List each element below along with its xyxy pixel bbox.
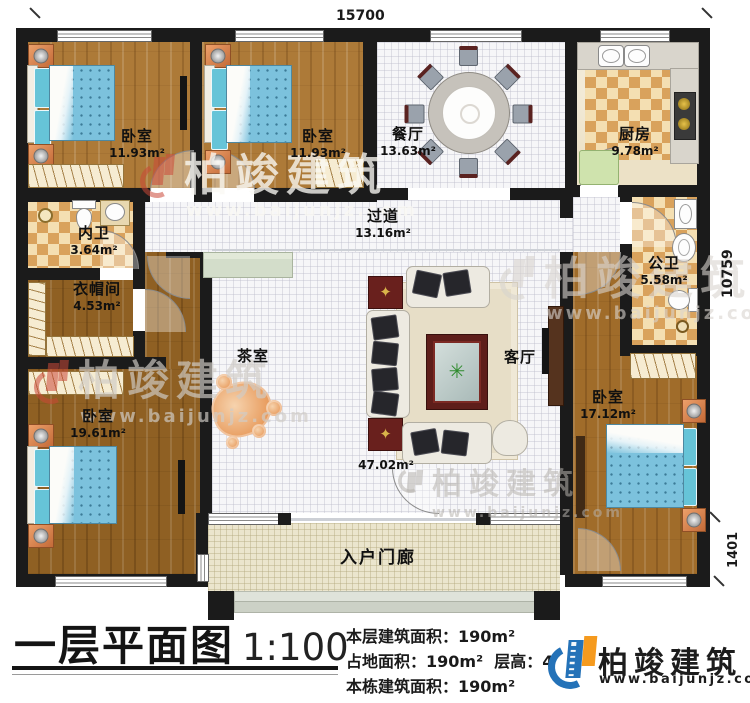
room-name: 卧室 bbox=[70, 408, 126, 426]
bed-sheet bbox=[50, 66, 73, 140]
porch-column-right bbox=[534, 591, 560, 620]
room-name: 卧室 bbox=[290, 128, 346, 146]
room-name: 厨房 bbox=[611, 126, 658, 144]
dimension-tick bbox=[713, 575, 724, 586]
washing-machine bbox=[674, 199, 697, 229]
room-area: 47.02m² bbox=[358, 458, 414, 472]
dining-chair bbox=[513, 105, 533, 124]
vestibule-floor bbox=[573, 197, 620, 252]
brand-logo-icon bbox=[140, 154, 176, 198]
title-text: 一层平面图 bbox=[14, 621, 234, 670]
door-gap-kitchen bbox=[580, 185, 618, 197]
room-name: 入户门廊 bbox=[340, 548, 416, 568]
sofa-cushion bbox=[371, 341, 399, 367]
bed-mattress bbox=[49, 65, 115, 141]
kitchen-sink bbox=[598, 45, 624, 67]
title-scale: 1:100 bbox=[242, 626, 349, 669]
room-name: 卧室 bbox=[580, 389, 636, 407]
stat-label: 本层建筑面积： bbox=[346, 627, 458, 646]
stat-label: 占地面积： bbox=[346, 652, 426, 671]
bed-sheet bbox=[50, 447, 74, 523]
plant-icon: ✳ bbox=[449, 361, 466, 381]
stat-line-2: 占地面积：190m² 层高：4 bbox=[346, 649, 553, 674]
lamp-icon bbox=[34, 529, 49, 544]
end-table: ✦ bbox=[368, 276, 403, 309]
lamp-icon bbox=[687, 513, 702, 528]
room-area: 19.61m² bbox=[70, 426, 126, 440]
watermark-site: www.baijunjz.com bbox=[546, 305, 750, 323]
sofa-cushion bbox=[371, 314, 400, 340]
room-label-living: 客厅 bbox=[504, 349, 536, 367]
window-bedroom-bl bbox=[55, 576, 167, 587]
brand-logo-icon bbox=[500, 256, 536, 300]
room-area: 9.78m² bbox=[611, 144, 658, 158]
room-name: 客厅 bbox=[504, 349, 536, 367]
sofa-cushion bbox=[442, 269, 471, 297]
room-name: 餐厅 bbox=[380, 126, 436, 144]
stat-line-3: 本栋建筑面积：190m² bbox=[346, 674, 553, 699]
title-underline-thin bbox=[12, 674, 338, 675]
dimension-right-lower: 1401 bbox=[726, 532, 741, 568]
dining-chair bbox=[459, 46, 478, 66]
wardrobe bbox=[46, 336, 134, 357]
room-label-inner-bath: 内卫 3.64m² bbox=[70, 225, 117, 257]
stat-value: 190m² bbox=[458, 677, 515, 696]
dining-table-center bbox=[460, 104, 480, 124]
lamp-icon bbox=[34, 149, 49, 164]
sofa-cushion bbox=[371, 390, 400, 416]
stove-burner-icon bbox=[678, 118, 690, 130]
room-label-cloakroom: 衣帽间 4.53m² bbox=[73, 281, 121, 313]
watermark: 柏竣建筑 www.baijunjz.com bbox=[500, 256, 750, 323]
bed-sheet bbox=[607, 425, 683, 453]
wardrobe bbox=[630, 353, 696, 379]
watermark-brand: 柏竣建筑 bbox=[78, 360, 274, 402]
room-label-public-bath: 公卫 5.58m² bbox=[640, 255, 687, 287]
porch-window-left bbox=[208, 513, 280, 525]
washbasin bbox=[105, 203, 125, 221]
brand-logo-icon bbox=[550, 636, 596, 690]
bed-sheet bbox=[227, 66, 250, 142]
stat-label: 本栋建筑面积： bbox=[346, 677, 458, 696]
room-area: 17.12m² bbox=[580, 407, 636, 421]
porch-pillar-b bbox=[278, 513, 291, 525]
lamp-icon bbox=[211, 49, 226, 64]
wardrobe bbox=[28, 164, 124, 188]
room-label-bedroom-tl: 卧室 11.93m² bbox=[109, 128, 165, 160]
stat-line-1: 本层建筑面积：190m² bbox=[346, 624, 553, 649]
door-gap-cloakroom bbox=[133, 289, 145, 331]
tv bbox=[180, 76, 187, 130]
stat-value: 190m² bbox=[458, 627, 515, 646]
wall-dining-south-b bbox=[510, 188, 565, 200]
window-bedroom-tl bbox=[57, 30, 152, 42]
room-area: 4.53m² bbox=[73, 299, 121, 313]
sofa-cushion bbox=[410, 428, 440, 456]
window-kitchen bbox=[600, 30, 670, 42]
washer-drum-icon bbox=[679, 204, 692, 224]
stove-burner-icon bbox=[678, 98, 690, 110]
coffee-table: ✳ bbox=[426, 334, 488, 410]
brand-logo-icon bbox=[34, 360, 70, 404]
dimension-tick bbox=[29, 7, 40, 18]
sink-bowl bbox=[602, 49, 620, 63]
dimension-tick bbox=[701, 7, 712, 18]
room-label-bedroom-tm: 卧室 11.93m² bbox=[290, 128, 346, 160]
floor-transition-line bbox=[212, 249, 560, 251]
nightstand bbox=[682, 508, 706, 532]
watermark-brand: 柏竣建筑 bbox=[184, 154, 388, 198]
nightstand bbox=[28, 524, 54, 548]
brand-site: www.baijunjz.com bbox=[599, 672, 750, 687]
title-underline bbox=[12, 666, 338, 670]
room-area: 13.63m² bbox=[380, 144, 436, 158]
dimension-right-upper: 10759 bbox=[720, 249, 736, 298]
door-gap-inner-bath bbox=[100, 268, 133, 280]
nightstand bbox=[682, 399, 706, 423]
decor-star-icon: ✦ bbox=[379, 285, 392, 300]
door-gap-public-bath bbox=[620, 202, 632, 244]
sink-bowl bbox=[628, 49, 646, 63]
dimension-top: 15700 bbox=[336, 8, 385, 24]
window-bedroom-tm bbox=[235, 30, 324, 42]
room-name: 公卫 bbox=[640, 255, 687, 273]
porch-window-side bbox=[197, 554, 209, 582]
room-label-porch: 入户门廊 bbox=[340, 548, 416, 568]
room-label-bedroom-br: 卧室 17.12m² bbox=[580, 389, 636, 421]
tea-stone-decor bbox=[226, 436, 239, 449]
room-name: 过道 bbox=[355, 208, 411, 226]
watermark-site: www.baijunjz.com bbox=[432, 506, 623, 520]
dimension-tick bbox=[709, 511, 720, 522]
sofa-cushion bbox=[441, 430, 470, 457]
room-area: 13.16m² bbox=[355, 226, 411, 240]
porch-wall-right bbox=[560, 525, 573, 575]
room-area: 11.93m² bbox=[290, 146, 346, 160]
room-name: 卧室 bbox=[109, 128, 165, 146]
room-name: 茶室 bbox=[237, 348, 269, 366]
wardrobe bbox=[28, 282, 46, 356]
tv bbox=[542, 328, 549, 374]
watermark: 柏竣建筑 www.baijunjz.com bbox=[398, 470, 623, 520]
room-area: 3.64m² bbox=[70, 243, 117, 257]
lamp-icon bbox=[34, 429, 49, 444]
bed-pillow bbox=[682, 428, 697, 466]
room-area: 11.93m² bbox=[109, 146, 165, 160]
brand-logo-icon bbox=[398, 470, 417, 493]
dining-chair bbox=[459, 158, 478, 178]
stat-label: 层高： bbox=[494, 652, 542, 671]
lamp-icon bbox=[34, 49, 49, 64]
wall-kitchen-left bbox=[565, 28, 577, 185]
nightstand bbox=[28, 424, 54, 448]
armchair bbox=[492, 420, 528, 456]
sofa-cushion bbox=[371, 367, 399, 392]
wall-hall-right-upper bbox=[560, 188, 573, 218]
room-name: 内卫 bbox=[70, 225, 117, 243]
lamp-icon bbox=[687, 404, 702, 419]
pendant-lamp-icon bbox=[38, 208, 53, 223]
room-label-corridor: 过道 13.16m² bbox=[355, 208, 411, 240]
stat-value: 190m² bbox=[426, 652, 483, 671]
tea-mat bbox=[203, 252, 293, 278]
room-label-kitchen: 厨房 9.78m² bbox=[611, 126, 658, 158]
bed-mattress bbox=[49, 446, 117, 524]
window-dining bbox=[430, 30, 522, 42]
room-area: 5.58m² bbox=[640, 273, 687, 287]
window-bedroom-br bbox=[602, 576, 687, 587]
decor-star-icon: ✦ bbox=[379, 427, 392, 442]
room-name: 衣帽间 bbox=[73, 281, 121, 299]
room-label-bedroom-bl: 卧室 19.61m² bbox=[70, 408, 126, 440]
room-label-dining: 餐厅 13.63m² bbox=[380, 126, 436, 158]
watermark-brand: 柏竣建筑 bbox=[432, 470, 580, 500]
bed-mattress bbox=[226, 65, 292, 143]
room-label-tea-room: 茶室 bbox=[237, 348, 269, 366]
tv bbox=[178, 460, 185, 514]
end-table: ✦ bbox=[368, 418, 403, 451]
area-stats: 本层建筑面积：190m² 占地面积：190m² 层高：4 本栋建筑面积：190m… bbox=[346, 624, 553, 699]
floor-plan-page: ✦ ✦ ✳ 柏竣建筑 www.baijunjz.com 柏竣建筑 www.bai… bbox=[0, 0, 750, 703]
bed-pillow bbox=[682, 468, 697, 506]
room-area-living: 47.02m² bbox=[358, 458, 414, 472]
dining-chair bbox=[405, 105, 425, 124]
drawing-title: 一层平面图1:100 bbox=[14, 612, 349, 673]
sofa-cushion bbox=[412, 270, 442, 299]
kitchen-sink bbox=[624, 45, 650, 67]
